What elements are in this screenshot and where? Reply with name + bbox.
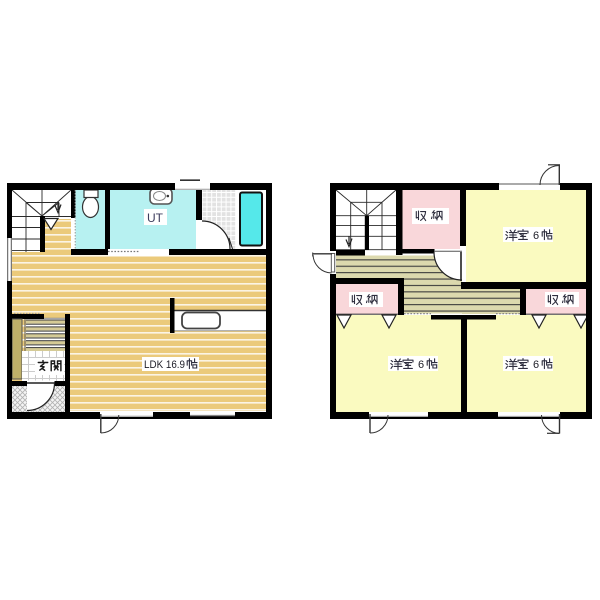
svg-text:6: 6 bbox=[418, 359, 424, 371]
svg-text:6: 6 bbox=[533, 230, 539, 242]
svg-text:UT: UT bbox=[147, 211, 164, 225]
svg-text:LDK 16.9: LDK 16.9 bbox=[144, 359, 185, 371]
svg-text:6: 6 bbox=[533, 359, 539, 371]
